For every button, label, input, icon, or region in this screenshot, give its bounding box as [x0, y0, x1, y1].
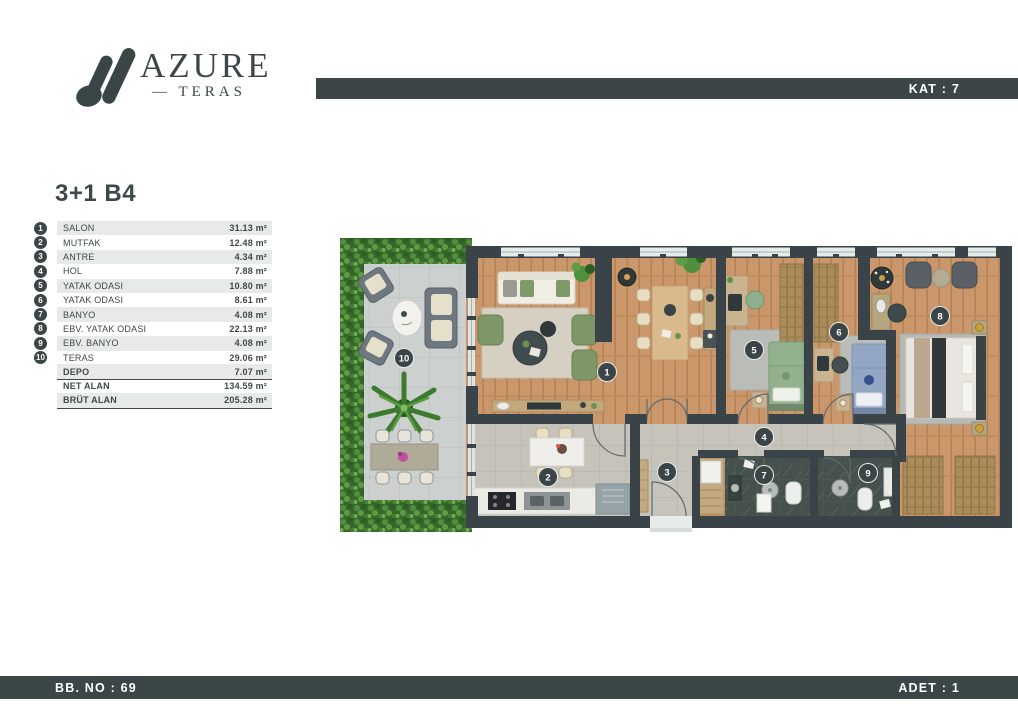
svg-text:3: 3	[664, 468, 669, 479]
floorplan-sheet: { "header": { "logo_title": "AZURE", "lo…	[0, 0, 1018, 720]
svg-text:7: 7	[761, 471, 766, 482]
bedroom-armchair	[906, 262, 931, 288]
dishwasher	[596, 484, 630, 514]
room-marker-10: 10	[395, 349, 414, 368]
room-marker-2: 2	[539, 468, 558, 487]
logo-title: AZURE	[140, 46, 272, 86]
row-number-badge: 10	[34, 351, 47, 364]
table-row-net-alan: NET ALAN134.59 m²	[34, 379, 272, 393]
room-marker-8: 8	[931, 307, 950, 326]
svg-text:6: 6	[836, 328, 841, 339]
room-marker-3: 3	[658, 463, 677, 482]
logo: AZURE — TERAS	[76, 40, 326, 118]
floorplan-drawing: 1 2 3 4 5 6 7 8 9 10	[340, 238, 1012, 534]
table-row: 3ANTRE4.34 m²	[34, 250, 272, 264]
logo-subtitle: — TERAS	[152, 84, 246, 101]
unit-type-title: 3+1 B4	[55, 180, 136, 208]
svg-text:5: 5	[751, 346, 757, 357]
quantity-label: ADET : 1	[898, 681, 960, 695]
nightstand	[972, 422, 987, 435]
washer	[757, 494, 771, 512]
bedroom-armchair	[952, 262, 977, 288]
row-number-badge: 9	[34, 337, 47, 350]
table-row: 6YATAK ODASI8.61 m²	[34, 293, 272, 307]
svg-text:9: 9	[865, 469, 870, 480]
svg-text:8: 8	[937, 312, 942, 323]
wardrobe	[780, 264, 804, 342]
terrace-dining-set	[371, 430, 438, 484]
terrace	[340, 238, 474, 532]
wardrobe	[903, 456, 943, 514]
row-number-badge: 5	[34, 279, 47, 292]
floor-label: KAT : 7	[909, 82, 960, 96]
fireplace	[616, 266, 638, 288]
media-console	[492, 400, 604, 412]
table-row: 4HOL7.88 m²	[34, 264, 272, 278]
table-row-depo: DEPO7.07 m²	[34, 365, 272, 379]
table-row: 1SALON31.13 m²	[34, 221, 272, 235]
unit-number-label: BB. NO : 69	[55, 681, 137, 695]
sofa	[498, 272, 575, 304]
room-marker-6: 6	[830, 323, 849, 342]
room-marker-9: 9	[859, 464, 878, 483]
room-marker-1: 1	[598, 363, 617, 382]
bed-green	[769, 342, 804, 411]
wardrobe	[955, 456, 995, 514]
room-marker-4: 4	[755, 428, 774, 447]
outdoor-coffee-table	[392, 300, 422, 336]
footer-banner: BB. NO : 69 ADET : 1	[0, 676, 1018, 699]
svg-text:10: 10	[399, 354, 410, 365]
toilet	[786, 482, 801, 504]
stove	[488, 492, 516, 510]
entry-opening	[650, 516, 692, 528]
room-marker-5: 5	[745, 341, 764, 360]
table-row: 7BANYO4.08 m²	[34, 307, 272, 321]
table-row-brut-alan: BRÜT ALAN205.28 m²	[34, 394, 272, 408]
master-bed	[906, 336, 986, 420]
armchair	[572, 315, 597, 345]
svg-text:4: 4	[761, 433, 767, 444]
svg-text:2: 2	[545, 473, 550, 484]
ottoman	[932, 269, 950, 287]
room-area-table: 1SALON31.13 m² 2MUTFAK12.48 m² 3ANTRE4.3…	[34, 221, 272, 408]
table-row: 10TERAS29.06 m²	[34, 351, 272, 365]
floor-banner: KAT : 7	[316, 78, 1018, 99]
dining-set	[637, 286, 703, 360]
row-number-badge: 7	[34, 308, 47, 321]
decor-lamp	[869, 265, 895, 291]
terrace-plants-bottom	[340, 500, 472, 532]
kitchen-counter	[474, 484, 630, 514]
side-table	[703, 330, 717, 348]
armchair	[572, 350, 597, 380]
nightstand	[972, 321, 987, 334]
row-number-badge: 2	[34, 236, 47, 249]
table-row: 5YATAK ODASI10.80 m²	[34, 279, 272, 293]
bed-blue	[852, 344, 886, 414]
table-row: 2MUTFAK12.48 m²	[34, 235, 272, 249]
row-number-badge: 8	[34, 322, 47, 335]
row-number-badge: 6	[34, 294, 47, 307]
row-number-badge: 1	[34, 222, 47, 235]
kitchen-island	[530, 438, 584, 466]
logo-mark-icon	[76, 44, 140, 114]
armchair	[478, 315, 503, 345]
table-row: 8EBV. YATAK ODASI22.13 m²	[34, 322, 272, 336]
row-number-badge: 4	[34, 265, 47, 278]
room-marker-7: 7	[755, 466, 774, 485]
row-number-badge: 3	[34, 250, 47, 263]
svg-text:1: 1	[604, 368, 610, 379]
toilet	[858, 488, 872, 510]
outdoor-sofa	[425, 288, 457, 348]
table-row: 9EBV. BANYO4.08 m²	[34, 336, 272, 350]
